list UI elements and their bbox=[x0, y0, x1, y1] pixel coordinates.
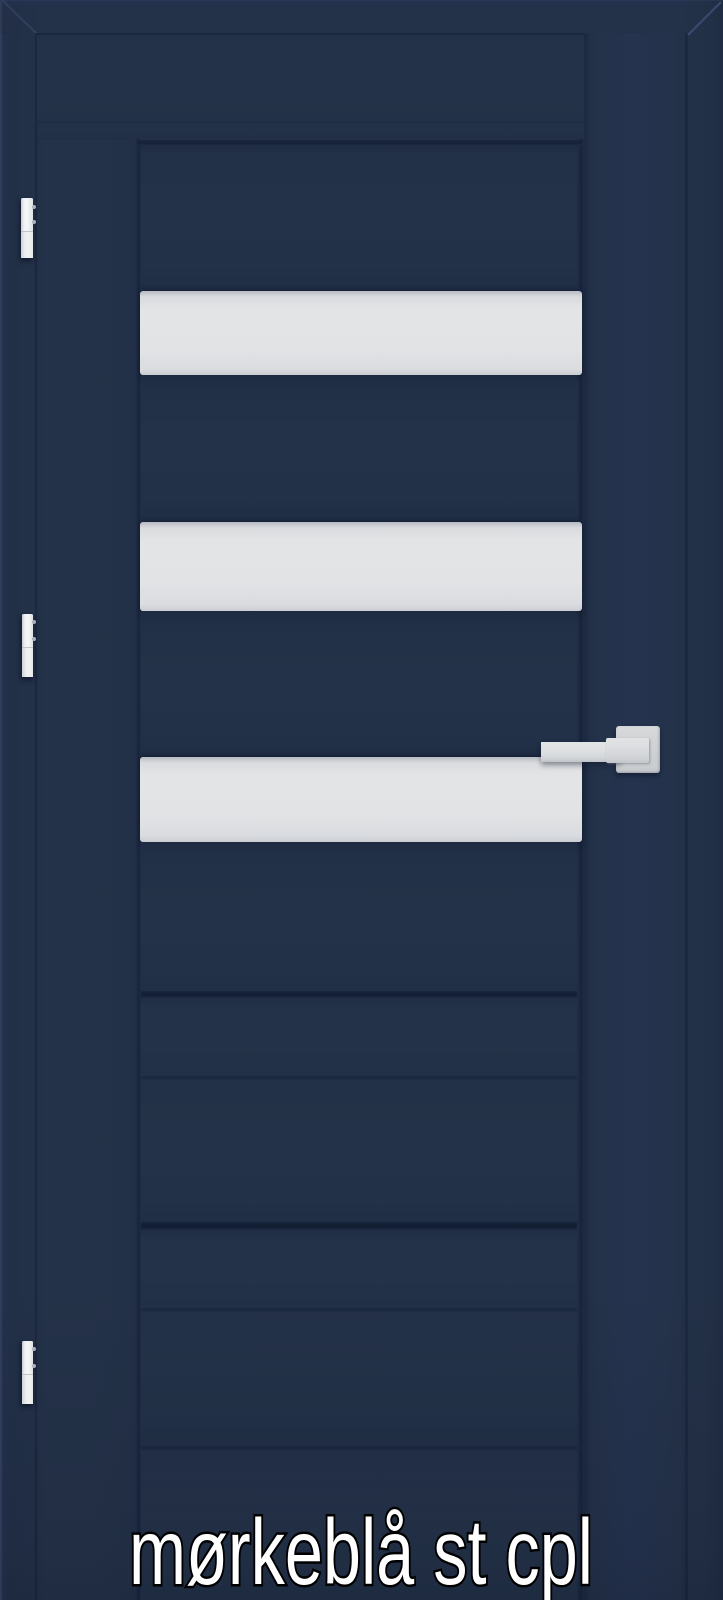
svg-text:mørkeblå st cpl: mørkeblå st cpl bbox=[129, 1500, 593, 1600]
